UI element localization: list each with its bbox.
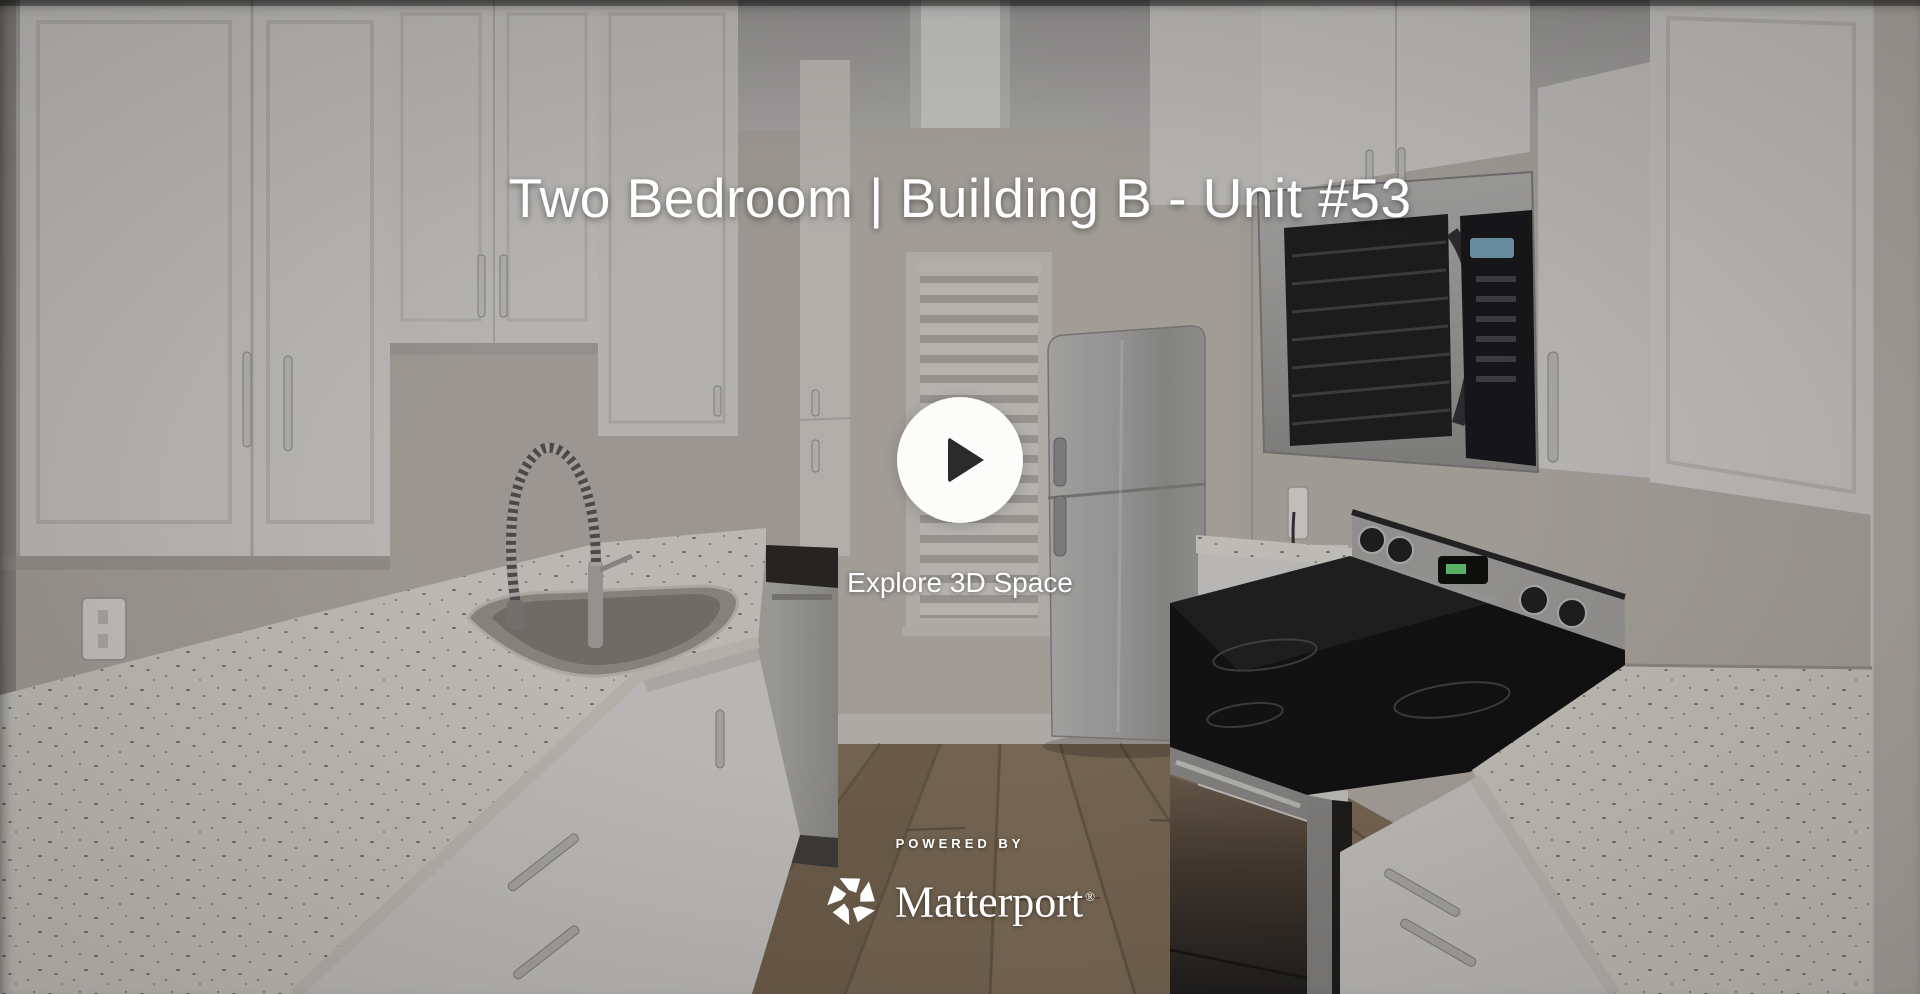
powered-by-footer: POWERED BY Matterport®: [0, 836, 1920, 929]
explore-3d-space-label[interactable]: Explore 3D Space: [847, 567, 1073, 599]
powered-by-label: POWERED BY: [896, 836, 1025, 851]
space-title: Two Bedroom | Building B - Unit #53: [0, 166, 1920, 230]
play-icon: [948, 437, 984, 483]
registered-trademark: ®: [1085, 889, 1095, 904]
matterport-cover: Two Bedroom | Building B - Unit #53 Expl…: [0, 0, 1920, 994]
play-button[interactable]: [897, 397, 1023, 523]
matterport-logo[interactable]: Matterport®: [825, 871, 1095, 929]
brand-name: Matterport: [895, 878, 1083, 927]
matterport-wordmark: Matterport®: [895, 871, 1095, 929]
matterport-logo-icon: [825, 874, 879, 926]
play-cta[interactable]: Explore 3D Space: [0, 397, 1920, 599]
